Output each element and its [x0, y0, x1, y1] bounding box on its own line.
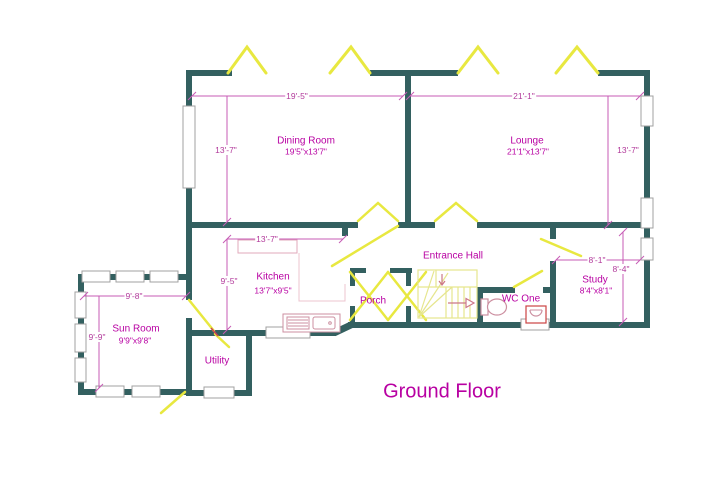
dim-label-dining-height: 13'-7"	[214, 145, 238, 155]
room-label-sun-room: Sun Room	[112, 324, 159, 335]
dim-label-sunroom-width: 9'-8"	[125, 291, 144, 301]
window-icon	[641, 96, 653, 126]
window-icon	[204, 387, 234, 398]
wall-wc-top-a	[477, 287, 515, 293]
window-icon	[75, 358, 86, 382]
door-swing-icon	[358, 203, 398, 221]
window-icon	[116, 271, 144, 282]
window-icon	[75, 324, 86, 352]
dim-label-study-height: 8'-4"	[612, 264, 631, 274]
window-icon	[641, 198, 653, 228]
page-title: Ground Floor	[383, 381, 501, 404]
room-size-study: 8'4"x8'1"	[580, 286, 612, 295]
wall-utility-top-a	[192, 330, 214, 336]
room-label-utility: Utility	[205, 356, 229, 367]
wall-top-dining	[186, 70, 232, 76]
wall-study-left-stub	[550, 228, 556, 239]
dimension-lines	[80, 92, 644, 392]
room-label-lounge: Lounge	[510, 136, 543, 147]
dim-label-dining-width: 19'-5"	[285, 91, 309, 101]
wall-left-lower	[186, 318, 192, 396]
wall-top-lounge	[598, 70, 650, 76]
room-label-wc-one: WC One	[502, 294, 540, 305]
window-icon	[132, 386, 160, 397]
wall-bottom-hall	[348, 322, 650, 328]
wall-hall-right	[477, 222, 650, 228]
dim-label-kitchen-height: 9'-5"	[220, 276, 239, 286]
door-swings	[161, 203, 581, 413]
wall-porch-right-a	[406, 268, 411, 286]
sink-tap	[329, 322, 332, 325]
kitchen-sink-icon	[283, 314, 340, 332]
dim-label-kitchen-width: 13'-7"	[255, 234, 279, 244]
basin-frame	[526, 306, 546, 323]
wash-basin-icon	[526, 306, 546, 323]
window-icon	[150, 271, 178, 282]
window-icon	[82, 271, 110, 282]
wall-hall-mid	[398, 222, 435, 228]
door-swing-icon	[435, 203, 477, 221]
room-label-porch: Porch	[360, 296, 386, 307]
bay-window-icon	[458, 47, 498, 73]
dim-label-lounge-width: 21'-1"	[512, 91, 536, 101]
window-icon	[96, 386, 124, 397]
bay-window-icon	[556, 47, 598, 73]
wall-hall-left	[186, 222, 358, 228]
door-swing-icon	[161, 392, 185, 413]
floor-plan-drawing	[0, 0, 720, 480]
wall-utility-right	[246, 330, 252, 396]
floor-plan-page: Dining Room 19'5"x13'7" Lounge 21'1"x13'…	[0, 0, 720, 480]
door-swing-icon	[189, 300, 214, 331]
walls	[78, 70, 650, 396]
bay-window-icon	[228, 47, 266, 73]
door-swing-icon	[332, 226, 398, 266]
door-swing-icon	[541, 239, 581, 256]
room-label-study: Study	[582, 275, 608, 286]
room-label-entrance-hall: Entrance Hall	[423, 251, 483, 262]
room-size-dining: 19'5"x13'7"	[285, 147, 327, 156]
wall-kitchen-stub	[342, 228, 348, 236]
window-icon	[183, 106, 195, 188]
door-swing-icon	[514, 271, 542, 287]
wall-top-middle	[370, 70, 458, 76]
room-label-kitchen: Kitchen	[256, 272, 289, 283]
room-size-kitchen: 13'7"x9'5"	[254, 286, 291, 295]
room-size-sun-room: 9'9"x9'8"	[119, 336, 151, 345]
window-bays	[228, 47, 598, 73]
dim-label-lounge-height: 13'-7"	[616, 145, 640, 155]
room-size-lounge: 21'1"x13'7"	[507, 147, 549, 156]
wall-wc-top-b	[543, 287, 550, 293]
counter-icon	[299, 253, 345, 301]
wall-study-left	[550, 261, 556, 322]
dim-label-study-width: 8'-1"	[588, 255, 607, 265]
wall-porch-right-b	[406, 306, 411, 324]
dim-label-sunroom-height: 9'-9"	[88, 332, 107, 342]
bay-window-icon	[330, 47, 370, 73]
room-label-dining: Dining Room	[277, 136, 335, 147]
staircase-icon	[418, 270, 477, 318]
